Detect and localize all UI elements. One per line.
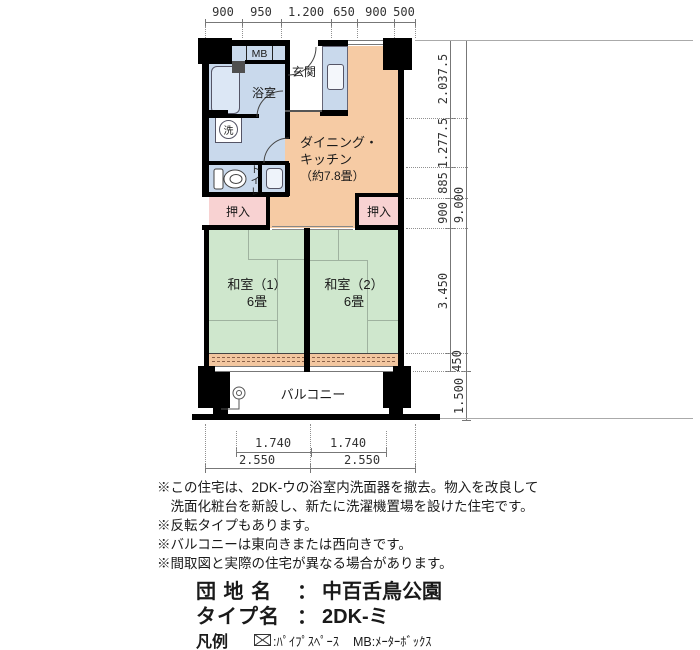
- wall-segment: [285, 46, 290, 139]
- closet-right-label: 押入: [367, 203, 391, 220]
- dim-top-4: 900: [365, 5, 387, 19]
- closet-left-label: 押入: [226, 203, 250, 220]
- wall-segment: [355, 225, 404, 230]
- dim-extension: [415, 26, 416, 38]
- dim-extension: [415, 424, 416, 468]
- dk-label-line3: （約7.8畳）: [300, 168, 378, 185]
- balcony-column-left: [198, 366, 230, 408]
- washitsu2-size: 6畳: [324, 293, 383, 310]
- dim-extension: [236, 431, 237, 452]
- legend-mb-label: MB:ﾒｰﾀｰﾎﾞｯｸｽ: [353, 631, 431, 650]
- unit-type-value: 2DK-ミ: [322, 600, 389, 629]
- dim-extension: [242, 26, 243, 38]
- wall-segment: [285, 163, 290, 196]
- dim-extension: [357, 26, 358, 38]
- tatami-line: [367, 320, 398, 321]
- washitsu2-name: 和室（2）: [324, 276, 383, 293]
- unit-type-label: タイプ名: [196, 600, 292, 629]
- dim-line-right-outer: [466, 40, 467, 420]
- note-line-4: ※バルコニーは東向きまたは西向きです。: [157, 535, 577, 554]
- kitchen-sink: [327, 64, 344, 90]
- dim-right-outer-1: 1.500: [452, 378, 466, 414]
- wall-segment: [202, 225, 270, 230]
- washing-machine: 洗: [215, 116, 242, 143]
- dim-extension: [386, 431, 387, 452]
- balcony-drain-inner: [237, 391, 242, 396]
- wall-segment: [320, 110, 348, 116]
- dim-right-inner-0: 2.037.5: [436, 54, 450, 105]
- extension-line-long: [440, 418, 693, 419]
- wall-segment: [355, 194, 359, 228]
- dim-tick: [415, 19, 416, 26]
- tatami-line: [209, 320, 277, 321]
- wall-segment: [398, 70, 404, 228]
- dim-top-1: 950: [250, 5, 272, 19]
- balcony-foot: [389, 406, 403, 415]
- tatami-line: [310, 260, 367, 261]
- dim-extension: [310, 424, 311, 468]
- legend-pipe-label: :ﾊﾟｲﾌﾟｽﾍﾟｰｽ: [273, 631, 339, 650]
- dim-extension: [205, 26, 206, 38]
- dim-extension: [331, 26, 332, 38]
- washitsu1-name: 和室（1）: [227, 276, 286, 293]
- wall-segment: [202, 40, 209, 197]
- washer-label: 洗: [224, 126, 234, 137]
- dim-line-right-inner: [450, 40, 451, 371]
- dim-line-top: [205, 22, 415, 23]
- toilet-label: トイレ: [246, 164, 261, 197]
- dim-tick: [281, 19, 282, 26]
- engawa-window-right: [310, 366, 393, 372]
- tatami-line: [338, 230, 339, 260]
- washitsu1-size: 6畳: [227, 293, 286, 310]
- floorplan-page: MB 洗: [0, 0, 700, 650]
- dim-top-3: 650: [333, 5, 355, 19]
- dim-extension: [205, 424, 206, 468]
- legend-title: 凡例: [196, 628, 228, 650]
- wall-segment: [202, 114, 259, 118]
- unit-type-colon: ：: [292, 600, 322, 629]
- mb-label: MB: [252, 48, 268, 60]
- dim-extension: [281, 26, 282, 38]
- dim-right-inner-5: 450: [450, 350, 464, 372]
- dim-right-outer-0: 9.000: [452, 187, 466, 223]
- dim-right-inner-2: 885: [436, 172, 450, 194]
- dim-tick: [205, 19, 206, 26]
- dim-right-inner-1: 1.277.5: [436, 118, 450, 169]
- bathroom-label: 浴室: [252, 84, 276, 101]
- dk-label-line2: キッチン: [300, 151, 378, 168]
- unit-type-row: タイプ名 ： 2DK-ミ: [196, 600, 389, 629]
- bathtub: [211, 66, 240, 114]
- dk-label-line1: ダイニング・: [300, 134, 378, 151]
- engawa-window-left: [215, 366, 304, 372]
- wall-segment: [204, 228, 209, 366]
- dim-tick: [242, 19, 243, 26]
- wall-segment: [318, 40, 348, 46]
- wall-segment: [355, 193, 404, 197]
- note-line-2: 洗面化粧台を新設し、新たに洗濯機置場を設けた住宅です。: [157, 497, 577, 516]
- tatami-line: [248, 230, 249, 259]
- dim-extension: [406, 228, 468, 229]
- legend-row: 凡例 :ﾊﾟｲﾌﾟｽﾍﾟｰｽ MB:ﾒｰﾀｰﾎﾞｯｸｽ: [196, 628, 431, 650]
- pipe-space-legend-icon: [254, 634, 271, 646]
- balcony-foot: [213, 406, 228, 415]
- dim-right-inner-3: 900: [436, 202, 450, 224]
- top-window-line: [348, 40, 383, 41]
- dim-bottom-inner-1: 1.740: [330, 436, 366, 450]
- washitsu1-label: 和室（1） 6畳: [227, 276, 286, 310]
- dim-top-0: 900: [212, 5, 234, 19]
- note-line-3: ※反転タイプもあります。: [157, 516, 577, 535]
- dim-tick: [462, 420, 471, 421]
- wall-segment: [266, 197, 270, 228]
- balcony-drain: [233, 387, 245, 399]
- note-line-5: ※間取図と実際の住宅が異なる場合があります。: [157, 554, 577, 573]
- dk-label: ダイニング・ キッチン （約7.8畳）: [300, 134, 378, 185]
- dim-top-5: 500: [393, 5, 415, 19]
- top-window-line: [348, 44, 383, 45]
- sliding-door-line: [272, 229, 353, 230]
- balcony-label: バルコニー: [281, 384, 346, 403]
- note-line-1: ※この住宅は、2DK-ウの浴室内洗面器を撤去。物入を改良して: [157, 478, 577, 497]
- washitsu2-label: 和室（2） 6畳: [324, 276, 383, 310]
- dim-bottom-inner-0: 1.740: [255, 436, 291, 450]
- dim-bottom-outer-0: 2.550: [239, 453, 275, 467]
- dim-tick: [357, 19, 358, 26]
- tatami-line: [248, 259, 304, 260]
- genkan-step-line: [285, 110, 322, 112]
- dim-tick: [394, 19, 395, 26]
- wall-segment: [304, 228, 310, 372]
- extension-line-long: [415, 40, 693, 41]
- dim-bottom-outer-1: 2.550: [344, 453, 380, 467]
- dim-extension: [394, 26, 395, 38]
- notes-block: ※この住宅は、2DK-ウの浴室内洗面器を撤去。物入を改良して 洗面化粧台を新設し…: [157, 478, 577, 573]
- dim-tick: [311, 448, 312, 457]
- wall-segment: [245, 60, 290, 64]
- pipe-space-icon: [232, 61, 245, 73]
- washbasin-unit: [266, 168, 283, 189]
- wall-segment: [398, 228, 404, 366]
- dim-tick: [331, 19, 332, 26]
- dim-right-inner-4: 3.450: [436, 273, 450, 309]
- dim-top-2: 1.200: [288, 5, 324, 19]
- sliding-door-line: [272, 226, 353, 227]
- corner-column: [383, 38, 412, 70]
- washing-machine-drum: 洗: [219, 120, 238, 139]
- balcony-column-right: [383, 366, 411, 408]
- wall-segment: [230, 40, 290, 46]
- entrance-label: 玄関: [292, 63, 316, 80]
